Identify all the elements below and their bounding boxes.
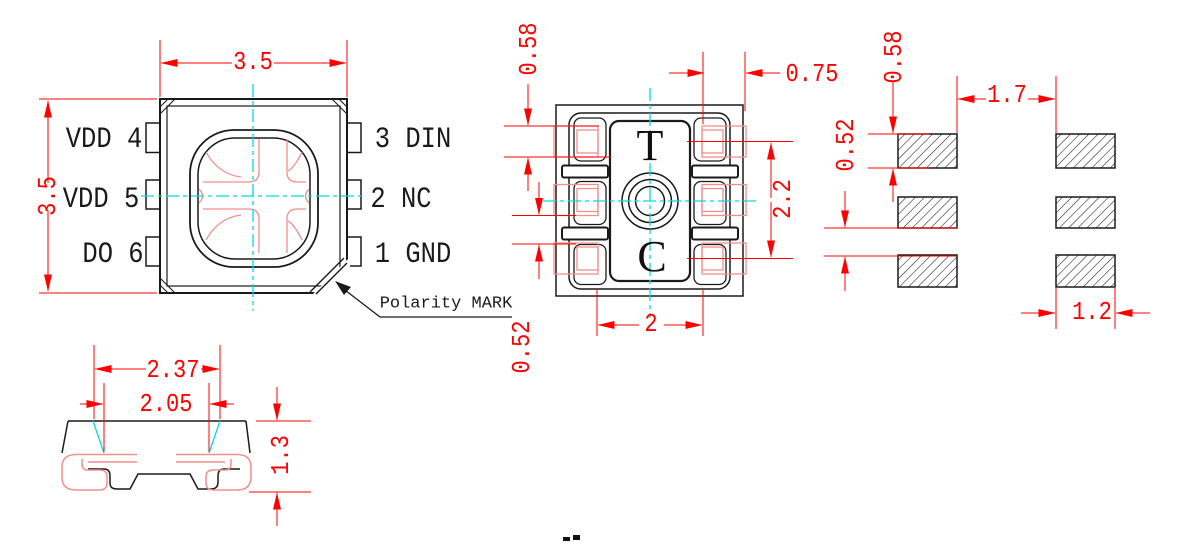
dim-label-top-height: 3.5: [35, 176, 61, 216]
bottom-view-geometry: [504, 52, 793, 336]
dim-label-pad-row-gap: 0.52: [833, 118, 859, 171]
pin-label-din3: 3 DIN: [375, 125, 452, 155]
side-view-gauge-lines: [93, 421, 220, 453]
pin-label-gnd1: 1 GND: [375, 240, 452, 270]
stray-marks: [563, 535, 580, 541]
dim-label-top-width: 3.5: [233, 49, 273, 75]
dim-label-side-lead-width: 2.05: [139, 391, 192, 417]
pad-layout-geometry: [824, 76, 1150, 329]
dim-label-side-top-width: 2.37: [146, 357, 199, 383]
side-lead-outlines: [62, 455, 251, 491]
top-view-geometry: [39, 40, 512, 317]
dim-label-bottom-pad-width: 0.75: [785, 61, 838, 87]
drawing-page: { "top_view": { "pins_left": [ {"label":…: [0, 0, 1194, 546]
pin-label-do6: DO 6: [82, 240, 143, 270]
dim-label-pad-height: 0.58: [881, 30, 907, 83]
dim-label-bottom-inner-span: 2: [644, 311, 657, 337]
dim-label-bottom-pad-height: 0.58: [516, 22, 542, 75]
pin-label-vdd5: VDD 5: [63, 185, 140, 215]
bottom-view-mark-t: T: [637, 124, 664, 168]
solder-pads: [898, 134, 1115, 287]
dim-label-pad-width: 1.2: [1072, 299, 1112, 325]
dim-label-side-height: 1.3: [268, 435, 294, 475]
dim-label-bottom-pad-gap: 0.52: [509, 320, 535, 373]
pin-label-nc2: 2 NC: [370, 185, 431, 215]
bottom-view-mark-c: C: [637, 235, 666, 279]
dim-label-bottom-rows-span: 2.2: [770, 179, 796, 219]
pin-label-vdd4: VDD 4: [66, 125, 143, 155]
dim-label-pad-col-gap: 1.7: [987, 82, 1027, 108]
polarity-mark-label: Polarity MARK: [380, 296, 513, 313]
